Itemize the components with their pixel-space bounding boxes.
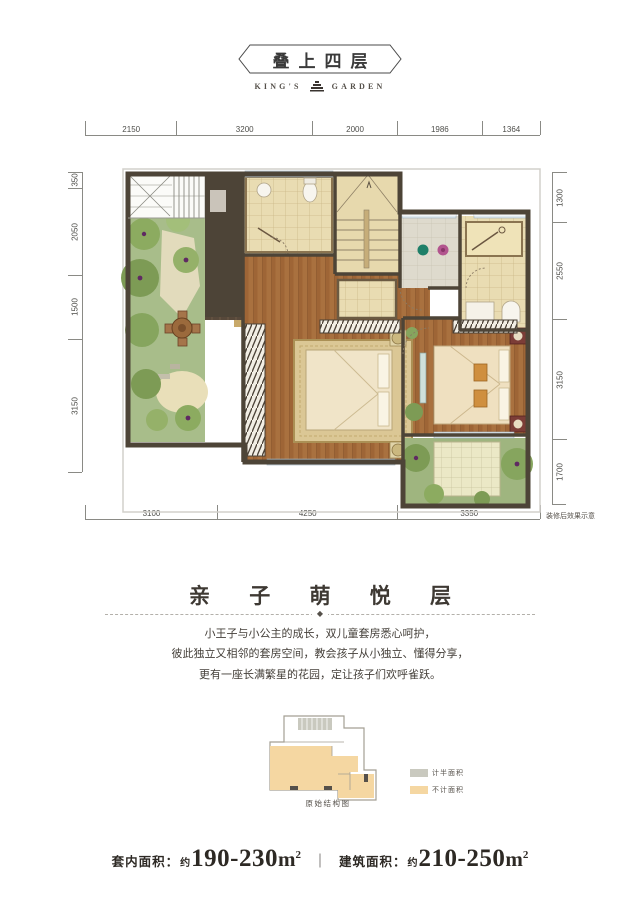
inner-area-unit: m2: [278, 847, 301, 872]
mini-legend: 计半面积 不计面积: [410, 768, 464, 802]
section-title: 亲 子 萌 悦 层: [0, 580, 640, 610]
stairs: [335, 174, 400, 274]
brand-logo-icon: [309, 81, 325, 92]
hallway: [400, 216, 460, 288]
inner-area-label: 套内面积：: [112, 851, 180, 870]
floor-plan: [82, 168, 542, 514]
bathroom-right: [460, 216, 528, 330]
dim-label: 3200: [236, 125, 254, 134]
pergola: [128, 174, 205, 218]
plan-note: 装修后效果示意: [546, 511, 626, 521]
dim-label: 3150: [556, 371, 565, 389]
divider-diamond-icon: ◆: [105, 609, 535, 618]
brochure-page: 叠上四层 KING'S GARDEN 21503200200019861364 …: [0, 0, 640, 920]
dimension-line-left: 350205015003150: [68, 172, 82, 473]
build-area-unit: m2: [505, 847, 528, 872]
dimension-line-right: 1300255031501700: [552, 172, 566, 505]
legend-label: 不计面积: [432, 785, 464, 795]
inner-area-approx: 约: [180, 854, 190, 869]
dim-segment: 3200: [176, 121, 312, 136]
dim-segment: 1500: [68, 275, 83, 339]
area-summary: 套内面积： 约 190-230 m2 ｜ 建筑面积： 约 210-250 m2: [0, 845, 640, 873]
legend-label: 计半面积: [432, 768, 464, 778]
dim-segment: 3150: [552, 319, 567, 439]
dim-label: 2050: [71, 223, 80, 241]
garden-bottom: [402, 438, 533, 507]
dimension-line-top: 21503200200019861364: [85, 121, 541, 135]
dim-label: 2000: [346, 125, 364, 134]
dim-label: 3150: [71, 397, 80, 415]
paragraph-line: 彼此独立又相邻的套房空间，教会孩子从小独立、懂得分享，: [0, 644, 640, 664]
bathroom-top: [243, 174, 335, 255]
mini-structure-diagram: 计半面积 不计面积 原始结构图: [252, 712, 466, 814]
dim-segment: 2550: [552, 222, 567, 319]
section-paragraph: 小王子与小公主的成长，双儿童套房悉心呵护，彼此独立又相邻的套房空间，教会孩子从小…: [0, 624, 640, 685]
page-title: 叠上四层: [238, 44, 402, 74]
legend-swatch-excluded: [410, 786, 428, 794]
dim-label: 350: [71, 174, 80, 187]
inner-area-value: 190-230: [191, 845, 278, 873]
legend-swatch-half: [410, 769, 428, 777]
mini-caption: 原始结构图: [258, 798, 398, 809]
dim-label: 2150: [122, 125, 140, 134]
dim-segment: 1364: [482, 121, 540, 136]
brand-left: KING'S: [254, 82, 301, 91]
dim-segment: 3150: [68, 339, 83, 472]
mini-plan: [254, 712, 404, 804]
dim-segment: 1986: [397, 121, 482, 136]
dim-segment: 2000: [312, 121, 397, 136]
section-divider: ◆: [105, 614, 535, 615]
dim-segment: 1700: [552, 439, 567, 504]
footer-separator: ｜: [313, 851, 327, 871]
dim-label: 2550: [556, 262, 565, 280]
dim-segment: 1300: [552, 172, 567, 222]
dim-segment: 2050: [68, 188, 83, 275]
brand-right: GARDEN: [332, 82, 386, 91]
dim-label: 1500: [71, 298, 80, 316]
legend-item: 不计面积: [410, 785, 464, 795]
title-box: 叠上四层: [238, 44, 402, 74]
build-area-approx: 约: [408, 854, 418, 869]
dim-segment: 2150: [85, 121, 176, 136]
dim-label: 1700: [556, 463, 565, 481]
dim-segment: 350: [68, 172, 83, 188]
brand-line: KING'S GARDEN: [0, 81, 640, 92]
paragraph-line: 更有一座长满繁星的花园，定让孩子们欢呼雀跃。: [0, 665, 640, 685]
build-area-value: 210-250: [419, 845, 506, 873]
tatami-room: [338, 280, 396, 318]
build-area-label: 建筑面积：: [339, 851, 407, 870]
dim-label: 1986: [431, 125, 449, 134]
dim-label: 1364: [502, 125, 520, 134]
legend-item: 计半面积: [410, 768, 464, 778]
bedroom-1: [294, 330, 412, 458]
dim-label: 1300: [556, 189, 565, 207]
paragraph-line: 小王子与小公主的成长，双儿童套房悉心呵护，: [0, 624, 640, 644]
